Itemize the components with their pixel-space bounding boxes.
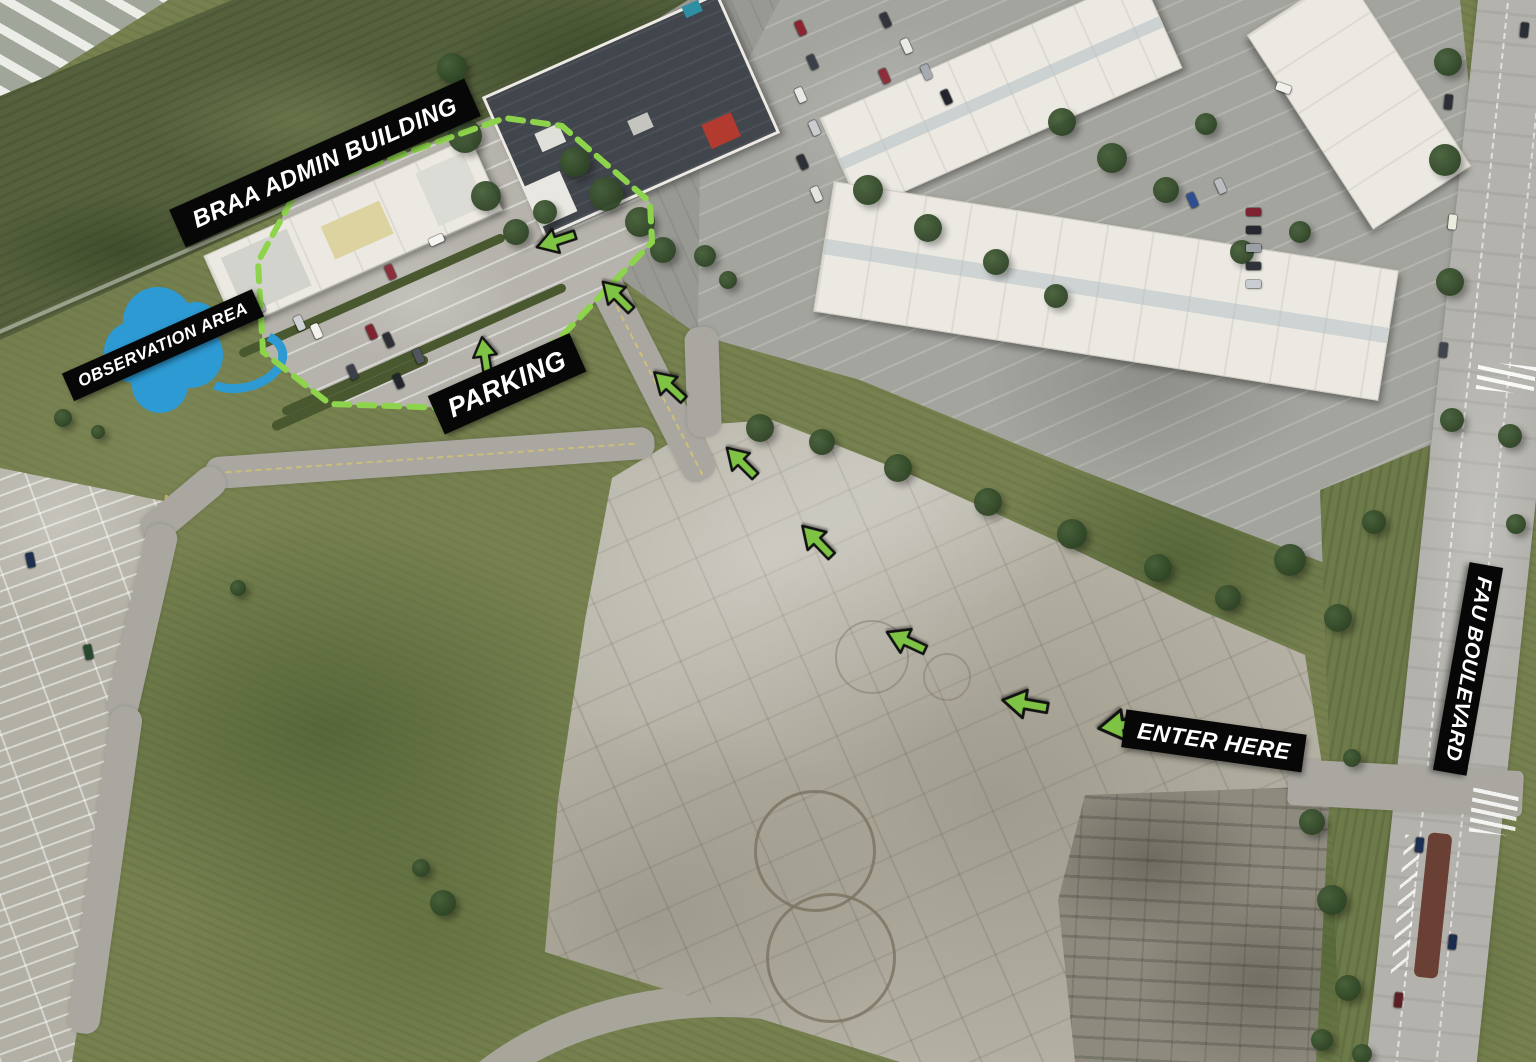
car [1519, 22, 1529, 38]
pad-connector-road [684, 326, 722, 437]
crosswalk [1469, 788, 1519, 837]
tree [809, 429, 835, 455]
tree [1097, 143, 1127, 173]
car [1246, 280, 1261, 288]
tree [884, 454, 912, 482]
skid-circle [754, 790, 876, 912]
tree [1434, 48, 1462, 76]
car [1246, 208, 1261, 216]
car [1447, 934, 1457, 950]
car [1447, 214, 1457, 230]
car [1393, 992, 1403, 1008]
tree [1506, 514, 1526, 534]
satellite-map: BRAA ADMIN BUILDING OBSERVATION AREA PAR… [0, 0, 1536, 1062]
tree [471, 181, 501, 211]
tree [1057, 519, 1087, 549]
tree [1440, 408, 1464, 432]
tree [625, 207, 655, 237]
crosswalk [1476, 361, 1536, 395]
tree [983, 249, 1009, 275]
car [1443, 94, 1453, 110]
tree [1048, 108, 1076, 136]
tree [1311, 1029, 1333, 1051]
tree [1274, 544, 1306, 576]
tree [914, 214, 942, 242]
tree [1343, 749, 1361, 767]
tree [1429, 144, 1461, 176]
car [1438, 342, 1448, 358]
tree [1215, 585, 1241, 611]
tree [694, 245, 716, 267]
tree [91, 425, 105, 439]
tree [1335, 975, 1361, 1001]
tree [1436, 268, 1464, 296]
car [1246, 244, 1261, 252]
tree [1317, 885, 1347, 915]
car [1246, 262, 1261, 270]
car [1246, 226, 1261, 234]
tree [1289, 221, 1311, 243]
skid-circle [766, 893, 896, 1023]
tree [853, 175, 883, 205]
tree [1195, 113, 1217, 135]
tree [560, 147, 590, 177]
tree [746, 414, 774, 442]
tree [412, 859, 430, 877]
tree [1044, 284, 1068, 308]
tree [1362, 510, 1386, 534]
tree [533, 200, 557, 224]
tree [230, 580, 246, 596]
car [1414, 837, 1424, 853]
tree [1144, 554, 1172, 582]
tree [1324, 604, 1352, 632]
tree [1299, 809, 1325, 835]
skid-mark [923, 653, 971, 701]
tree [430, 890, 456, 916]
tree [1498, 424, 1522, 448]
tree [54, 409, 72, 427]
tree [503, 219, 529, 245]
tree [589, 177, 623, 211]
tree [1352, 1044, 1372, 1062]
tree [1153, 177, 1179, 203]
tree [974, 488, 1002, 516]
tree [719, 271, 737, 289]
tree [650, 237, 676, 263]
